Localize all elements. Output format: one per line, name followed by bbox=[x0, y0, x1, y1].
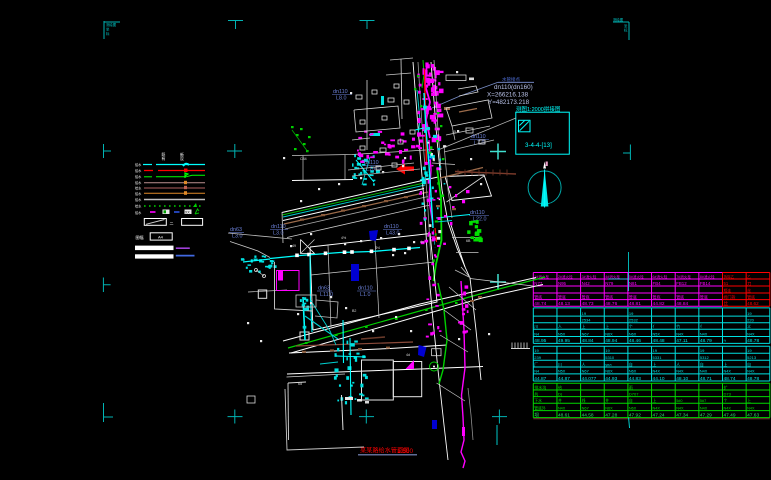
svg-text:48.62: 48.62 bbox=[747, 301, 759, 306]
svg-text:Φ4: Φ4 bbox=[375, 246, 380, 250]
svg-text:管底: 管底 bbox=[558, 294, 566, 300]
svg-text:dn110: dn110 bbox=[271, 224, 286, 230]
svg-text:B2: B2 bbox=[352, 309, 356, 313]
svg-text:N6Y: N6Y bbox=[582, 406, 590, 410]
svg-text:测绘图: 测绘图 bbox=[613, 17, 624, 22]
svg-text:管底: 管底 bbox=[676, 294, 684, 300]
svg-text:44.87: 44.87 bbox=[534, 376, 546, 382]
svg-text:D707: D707 bbox=[629, 391, 639, 396]
svg-text:5#0: 5#0 bbox=[676, 399, 682, 403]
svg-text:设: 设 bbox=[180, 156, 184, 161]
svg-text:N4X: N4X bbox=[747, 332, 755, 336]
svg-text:人: 人 bbox=[582, 362, 586, 367]
svg-text:48.10: 48.10 bbox=[676, 376, 688, 382]
svg-text:48.81: 48.81 bbox=[629, 301, 641, 307]
svg-text:48.78: 48.78 bbox=[747, 338, 759, 344]
svg-text:5#消火栓: 5#消火栓 bbox=[629, 274, 644, 279]
svg-text:44.58: 44.58 bbox=[582, 412, 594, 418]
svg-text:N6X: N6X bbox=[605, 406, 613, 410]
svg-text:管底: 管底 bbox=[582, 294, 590, 300]
svg-text:47.49: 47.49 bbox=[724, 412, 736, 418]
svg-text:FB14: FB14 bbox=[700, 281, 711, 286]
svg-text:人: 人 bbox=[676, 362, 680, 367]
svg-text:拆除乙: 拆除乙 bbox=[724, 274, 735, 279]
svg-text:19: 19 bbox=[534, 348, 539, 353]
svg-text:≈: ≈ bbox=[724, 339, 727, 344]
svg-text:L1.0: L1.0 bbox=[360, 292, 371, 298]
svg-text:упл: упл bbox=[605, 363, 611, 367]
svg-text:N95: N95 bbox=[558, 281, 567, 286]
svg-text:48.84: 48.84 bbox=[676, 301, 688, 307]
svg-text:丝: 丝 bbox=[724, 300, 729, 306]
svg-text:N6X: N6X bbox=[629, 370, 637, 374]
svg-text:48.79: 48.79 bbox=[700, 338, 712, 344]
svg-text:N4X: N4X bbox=[653, 370, 661, 374]
svg-text:井: 井 bbox=[605, 398, 609, 403]
svg-text:A4: A4 bbox=[158, 235, 164, 240]
svg-text:19: 19 bbox=[605, 348, 610, 353]
svg-text:N4X: N4X bbox=[700, 406, 708, 410]
svg-text:N42: N42 bbox=[582, 281, 591, 286]
svg-text:48.13: 48.13 bbox=[558, 301, 570, 307]
svg-text:4#消火栓: 4#消火栓 bbox=[605, 274, 620, 279]
svg-text:5331: 5331 bbox=[653, 355, 663, 360]
svg-text:44.87: 44.87 bbox=[558, 376, 570, 382]
svg-text:N6X: N6X bbox=[629, 406, 637, 410]
svg-text:相连: 相连 bbox=[724, 288, 732, 293]
svg-text:线: 线 bbox=[582, 398, 586, 403]
svg-text:个: 个 bbox=[629, 324, 633, 329]
svg-text:管底外: 管底外 bbox=[534, 405, 546, 410]
svg-text:二: 二 bbox=[170, 221, 174, 226]
svg-text:FB4: FB4 bbox=[653, 281, 662, 286]
svg-text:N5X: N5X bbox=[558, 332, 566, 336]
svg-text:N6X: N6X bbox=[605, 370, 613, 374]
svg-text:自: 自 bbox=[747, 362, 751, 367]
svg-text:自: 自 bbox=[629, 398, 633, 403]
svg-text:测绘图: 测绘图 bbox=[106, 22, 117, 27]
svg-text:48.48: 48.48 bbox=[653, 338, 665, 344]
svg-text:47.34: 47.34 bbox=[676, 412, 688, 418]
svg-text:44.077: 44.077 bbox=[582, 376, 597, 382]
svg-text:N4X: N4X bbox=[676, 370, 684, 374]
svg-text:47.28: 47.28 bbox=[605, 412, 617, 418]
svg-text:3#消火栓: 3#消火栓 bbox=[582, 274, 597, 279]
svg-text:L43.0: L43.0 bbox=[386, 231, 400, 237]
svg-text:8#消火栓: 8#消火栓 bbox=[700, 274, 715, 279]
svg-text:44.83: 44.83 bbox=[629, 376, 641, 382]
svg-text:Y=482173.218: Y=482173.218 bbox=[488, 99, 530, 106]
svg-text:44.93: 44.93 bbox=[605, 376, 617, 382]
svg-text:厂: 厂 bbox=[534, 363, 538, 367]
svg-text:川: 川 bbox=[558, 362, 562, 367]
svg-text:dn110: dn110 bbox=[364, 160, 379, 166]
svg-text:川: 川 bbox=[534, 324, 538, 329]
svg-text:19: 19 bbox=[629, 311, 634, 316]
svg-text:管底: 管底 bbox=[629, 294, 637, 300]
svg-text:管底: 管底 bbox=[700, 294, 708, 300]
svg-text:dn110(dn160): dn110(dn160) bbox=[494, 84, 533, 91]
svg-text:D): D) bbox=[558, 391, 563, 396]
svg-text:48.84: 48.84 bbox=[582, 338, 594, 344]
svg-text:给: 给 bbox=[558, 384, 562, 390]
svg-text:N4X: N4X bbox=[724, 370, 732, 374]
svg-text:N4X: N4X bbox=[676, 332, 684, 336]
svg-text:自: 自 bbox=[629, 362, 633, 367]
svg-text:给水: 给水 bbox=[135, 191, 142, 196]
svg-text:给水: 给水 bbox=[135, 186, 142, 191]
svg-text:N4X: N4X bbox=[558, 406, 566, 410]
svg-text:19: 19 bbox=[747, 311, 752, 316]
svg-text:N4X: N4X bbox=[700, 332, 708, 336]
svg-text:上: 上 bbox=[582, 324, 586, 329]
svg-text:48.71: 48.71 bbox=[700, 376, 712, 382]
svg-text:C84: C84 bbox=[300, 157, 307, 161]
svg-text:dn63: dn63 bbox=[230, 227, 242, 233]
svg-text:5213: 5213 bbox=[747, 355, 757, 360]
svg-text:48.61: 48.61 bbox=[558, 412, 570, 418]
svg-text:丝: 丝 bbox=[747, 288, 751, 293]
svg-text:雨: 雨 bbox=[629, 385, 633, 390]
svg-text:上: 上 bbox=[653, 362, 657, 367]
svg-text:19: 19 bbox=[582, 311, 587, 316]
svg-text:220: 220 bbox=[747, 318, 754, 323]
svg-text:dn110: dn110 bbox=[471, 134, 486, 140]
svg-text:47.11: 47.11 bbox=[676, 338, 688, 344]
svg-text:dn110: dn110 bbox=[470, 210, 485, 216]
svg-text:给水: 给水 bbox=[135, 174, 142, 179]
svg-text:D73: D73 bbox=[724, 391, 732, 396]
svg-text:人: 人 bbox=[558, 324, 562, 329]
svg-text:dn63: dn63 bbox=[318, 286, 330, 292]
svg-text:L8.0: L8.0 bbox=[336, 96, 347, 102]
svg-text:N4X: N4X bbox=[747, 406, 755, 410]
svg-text:乙: 乙 bbox=[747, 274, 751, 279]
svg-text:N6Y: N6Y bbox=[582, 332, 590, 336]
svg-text:管底: 管底 bbox=[747, 294, 755, 300]
svg-text:阀门拆: 阀门拆 bbox=[724, 294, 736, 300]
svg-text:上: 上 bbox=[747, 398, 751, 403]
svg-text:图幅: 图幅 bbox=[136, 234, 144, 240]
svg-text:N4X: N4X bbox=[724, 406, 732, 410]
svg-text:49.95: 49.95 bbox=[558, 338, 570, 344]
svg-text:47.24: 47.24 bbox=[653, 412, 665, 418]
svg-text:47.63: 47.63 bbox=[747, 412, 759, 418]
svg-text:管底: 管底 bbox=[653, 294, 661, 300]
svg-text:坝: 坝 bbox=[534, 411, 539, 418]
svg-text:dn110: dn110 bbox=[358, 286, 373, 292]
svg-text:dn110: dn110 bbox=[333, 89, 348, 95]
svg-text:49: 49 bbox=[292, 244, 296, 248]
svg-text:19: 19 bbox=[700, 348, 705, 353]
svg-text:3-4-4-[13]: 3-4-4-[13] bbox=[525, 142, 552, 149]
svg-text:48.94: 48.94 bbox=[605, 338, 617, 344]
svg-text:4%: 4% bbox=[341, 236, 347, 240]
svg-text:48.74: 48.74 bbox=[534, 301, 546, 307]
svg-text:6d: 6d bbox=[298, 382, 302, 386]
svg-text:下水: 下水 bbox=[534, 398, 542, 403]
svg-text:义: 义 bbox=[747, 324, 751, 329]
svg-text:48.78: 48.78 bbox=[747, 376, 759, 382]
svg-text:X=266216.138: X=266216.138 bbox=[487, 92, 529, 99]
svg-text:47.29: 47.29 bbox=[700, 412, 712, 418]
svg-text:井: 井 bbox=[558, 398, 562, 403]
svg-text:给水: 给水 bbox=[135, 168, 142, 173]
svg-text:N6X: N6X bbox=[605, 332, 613, 336]
svg-text:管底: 管底 bbox=[605, 294, 613, 300]
svg-text:N79: N79 bbox=[605, 281, 614, 286]
svg-text:N6X: N6X bbox=[629, 332, 637, 336]
svg-text:亻: 亻 bbox=[700, 324, 704, 329]
svg-text:239: 239 bbox=[534, 355, 541, 360]
svg-text:上: 上 bbox=[605, 324, 609, 329]
svg-text:48.76: 48.76 bbox=[605, 301, 617, 307]
svg-text:N4X: N4X bbox=[747, 370, 755, 374]
svg-text:N5X: N5X bbox=[653, 332, 661, 336]
svg-text:N5X: N5X bbox=[558, 370, 566, 374]
svg-text:给水: 给水 bbox=[135, 180, 142, 185]
svg-text:6#消火栓: 6#消火栓 bbox=[653, 274, 668, 279]
svg-text:44.10: 44.10 bbox=[653, 376, 665, 382]
svg-text:N81: N81 bbox=[629, 281, 638, 286]
svg-text:51: 51 bbox=[724, 281, 729, 286]
svg-text:给水: 给水 bbox=[135, 210, 142, 215]
svg-text:排水沟: 排水沟 bbox=[534, 384, 546, 390]
svg-text:19: 19 bbox=[747, 348, 752, 353]
svg-text:给水: 给水 bbox=[135, 197, 142, 202]
svg-text:N4X: N4X bbox=[700, 370, 708, 374]
svg-text:6B: 6B bbox=[466, 239, 471, 243]
svg-text:5312: 5312 bbox=[700, 355, 710, 360]
svg-text:N4X: N4X bbox=[676, 406, 684, 410]
svg-text:L3.0: L3.0 bbox=[273, 231, 284, 237]
svg-text:4d: 4d bbox=[406, 353, 410, 357]
svg-text:5#7: 5#7 bbox=[700, 399, 706, 403]
svg-text:给水: 给水 bbox=[135, 162, 142, 167]
svg-text:XX: XX bbox=[185, 210, 190, 214]
svg-text:给水: 给水 bbox=[135, 204, 142, 209]
svg-text:亻: 亻 bbox=[653, 324, 657, 329]
svg-text:自: 自 bbox=[700, 362, 704, 367]
svg-text:有: 有 bbox=[162, 156, 166, 161]
svg-text:N4: N4 bbox=[534, 332, 539, 336]
svg-text:2532: 2532 bbox=[629, 318, 639, 323]
svg-text:N6Y: N6Y bbox=[582, 370, 590, 374]
svg-text:dn110: dn110 bbox=[384, 224, 399, 230]
svg-text:44.82: 44.82 bbox=[653, 301, 665, 307]
svg-text:48.73: 48.73 bbox=[582, 301, 594, 307]
svg-text:48.46: 48.46 bbox=[629, 338, 641, 344]
svg-text:2#消火栓: 2#消火栓 bbox=[558, 274, 573, 279]
svg-text:N4X: N4X bbox=[653, 406, 661, 410]
svg-text:FB12: FB12 bbox=[676, 281, 687, 286]
svg-text:7#消火栓: 7#消火栓 bbox=[676, 274, 691, 279]
svg-text:扩: 扩 bbox=[724, 384, 728, 390]
svg-text:2534: 2534 bbox=[582, 318, 592, 323]
svg-text:N4: N4 bbox=[534, 370, 539, 374]
svg-text:共: 共 bbox=[534, 390, 538, 396]
svg-text:上: 上 bbox=[653, 398, 657, 403]
svg-text:47.92: 47.92 bbox=[629, 412, 641, 418]
svg-text:个: 个 bbox=[724, 398, 728, 403]
svg-text:1:500: 1:500 bbox=[397, 448, 413, 455]
svg-text:竹: 竹 bbox=[676, 324, 680, 329]
svg-text:48.95: 48.95 bbox=[534, 338, 546, 344]
svg-text:上: 上 bbox=[724, 362, 728, 367]
svg-text:48.74: 48.74 bbox=[724, 376, 736, 382]
svg-text:管底: 管底 bbox=[534, 294, 542, 300]
svg-text:19: 19 bbox=[653, 348, 658, 353]
svg-text:dn: dn bbox=[420, 240, 424, 244]
svg-text:5310: 5310 bbox=[605, 355, 615, 360]
